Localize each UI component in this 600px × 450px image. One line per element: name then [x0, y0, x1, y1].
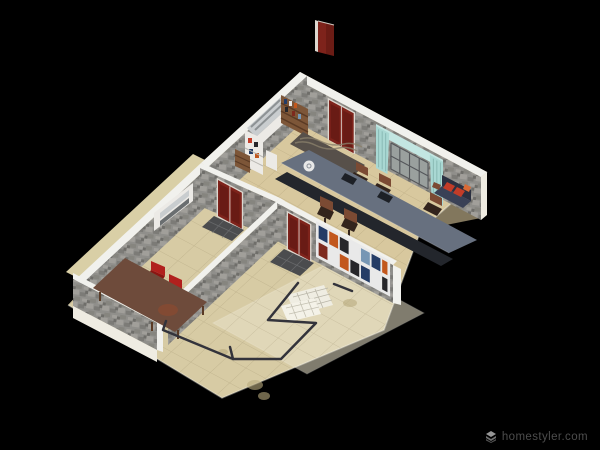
ne-wall-endcap: [481, 172, 487, 220]
white-plate: [304, 161, 315, 172]
floating-door-frame: [315, 20, 318, 52]
watermark-text: homestyler.com: [502, 431, 588, 443]
wall2-endcap: [393, 265, 401, 305]
render-canvas: homestyler.com: [0, 0, 600, 450]
floorplan-render: [0, 0, 600, 450]
homestyler-watermark: homestyler.com: [485, 431, 588, 443]
floating-detached-door: [315, 20, 334, 56]
homestyler-logo-icon: [485, 431, 497, 443]
